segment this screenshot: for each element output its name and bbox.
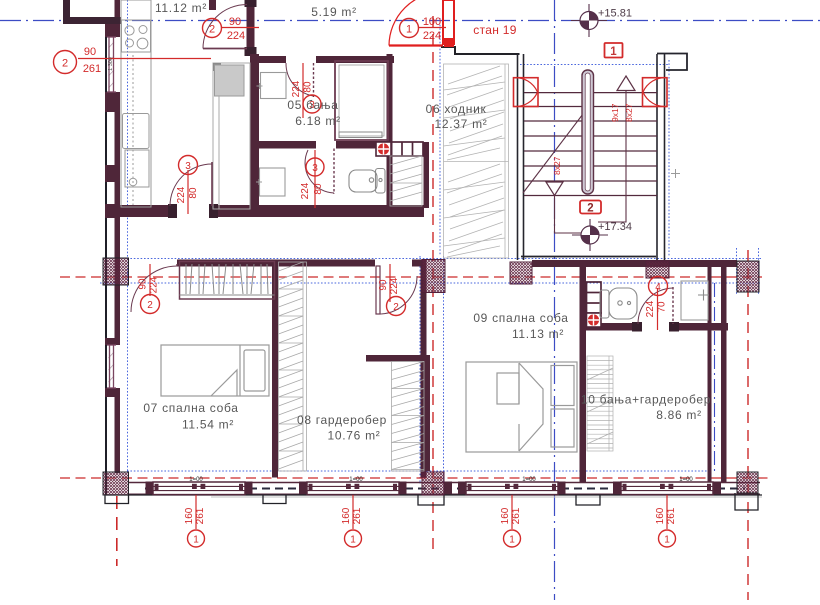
svg-text:1=00: 1=00 [349, 477, 363, 483]
svg-text:1: 1 [509, 535, 515, 546]
svg-text:3: 3 [185, 161, 191, 172]
svg-text:1: 1 [664, 535, 670, 546]
svg-text:5.19 m²: 5.19 m² [311, 5, 357, 19]
svg-text:90: 90 [138, 278, 149, 290]
svg-text:160: 160 [655, 507, 666, 524]
svg-text:160: 160 [341, 507, 352, 524]
svg-text:+17.34: +17.34 [598, 221, 632, 233]
svg-text:160: 160 [184, 507, 195, 524]
svg-text:1: 1 [406, 24, 412, 36]
svg-text:90: 90 [84, 46, 96, 58]
svg-text:стан 19: стан 19 [473, 23, 516, 37]
svg-text:12.37 m²: 12.37 m² [435, 117, 488, 131]
svg-text:224: 224 [389, 277, 400, 294]
svg-text:100: 100 [423, 16, 441, 28]
svg-text:261: 261 [666, 507, 677, 524]
svg-text:06 ходник: 06 ходник [426, 102, 487, 116]
svg-text:2: 2 [62, 58, 68, 70]
svg-text:2: 2 [587, 203, 593, 215]
svg-text:+15.81: +15.81 [598, 8, 632, 20]
svg-text:261: 261 [352, 507, 363, 524]
svg-text:4: 4 [655, 282, 661, 293]
svg-text:07 спална соба: 07 спална соба [143, 401, 238, 415]
svg-text:1: 1 [350, 535, 356, 546]
svg-text:224: 224 [227, 30, 245, 42]
svg-text:80: 80 [313, 183, 324, 195]
svg-text:1=00: 1=00 [522, 477, 536, 483]
svg-text:8.86 m²: 8.86 m² [656, 408, 702, 422]
svg-text:05 бања: 05 бања [287, 98, 338, 112]
svg-text:224: 224 [291, 80, 302, 97]
svg-text:1=00: 1=00 [679, 477, 693, 483]
svg-text:224: 224 [176, 186, 187, 203]
svg-text:160: 160 [500, 507, 511, 524]
svg-text:224: 224 [645, 300, 656, 317]
svg-text:10.76 m²: 10.76 m² [328, 429, 381, 443]
svg-text:80: 80 [303, 81, 314, 93]
svg-text:261: 261 [83, 63, 101, 75]
svg-text:261: 261 [195, 507, 206, 524]
svg-text:1: 1 [193, 535, 199, 546]
svg-text:2: 2 [147, 300, 153, 311]
svg-text:224: 224 [423, 30, 441, 42]
svg-text:11.12 m²: 11.12 m² [155, 1, 207, 15]
svg-text:11.54 m²: 11.54 m² [182, 418, 234, 432]
svg-text:08 гардеробер: 08 гардеробер [297, 413, 387, 427]
svg-text:2: 2 [393, 302, 399, 313]
svg-text:70: 70 [657, 301, 668, 313]
svg-text:2: 2 [209, 24, 215, 36]
svg-text:80: 80 [188, 187, 199, 199]
svg-text:3: 3 [312, 163, 318, 174]
svg-text:9x17: 9x17 [610, 103, 620, 122]
svg-text:261: 261 [511, 507, 522, 524]
svg-text:1: 1 [610, 46, 617, 58]
svg-text:90: 90 [378, 279, 389, 291]
svg-text:6.18 m²: 6.18 m² [295, 114, 341, 128]
svg-text:10 бања+гардеробер: 10 бања+гардеробер [581, 393, 711, 407]
svg-text:1 300: 1 300 [108, 57, 114, 71]
svg-text:8x27: 8x27 [624, 103, 634, 122]
svg-text:8x27: 8x27 [552, 156, 562, 175]
svg-text:224: 224 [149, 276, 160, 293]
svg-text:224: 224 [300, 182, 311, 199]
svg-text:11.13 m²: 11.13 m² [512, 327, 564, 341]
svg-text:90: 90 [229, 16, 241, 28]
svg-text:09 спална соба: 09 спална соба [473, 311, 568, 325]
svg-text:1=00: 1=00 [189, 477, 203, 483]
